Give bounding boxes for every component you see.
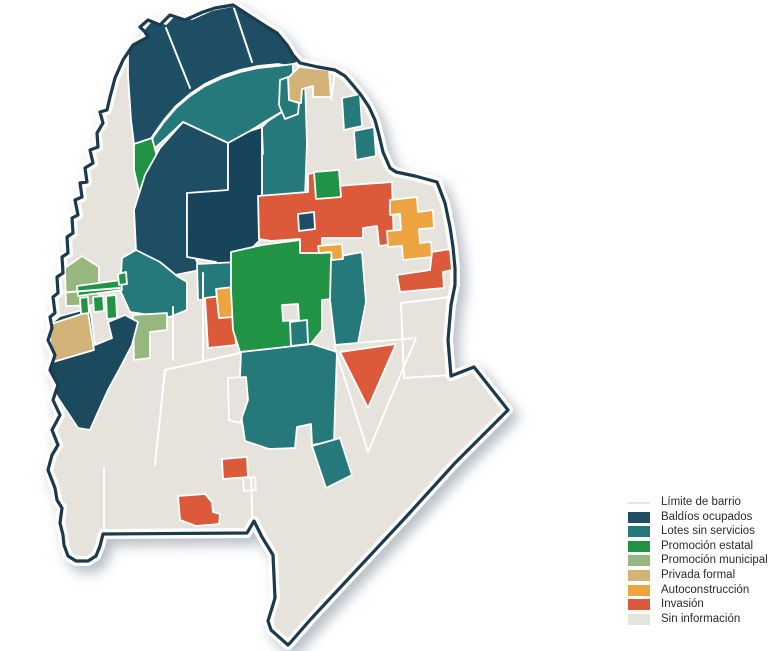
legend-item-estatal: Promoción estatal	[628, 541, 768, 552]
region-green-sq-red	[314, 170, 341, 199]
region-green-dot	[118, 272, 127, 285]
legend-item-invasion: Invasión	[628, 599, 768, 610]
map-page: Límite de barrioBaldíos ocupadosLotes si…	[0, 0, 778, 651]
legend-item-municipal: Promoción municipal	[628, 555, 768, 566]
legend-item-baldios: Baldíos ocupados	[628, 512, 768, 523]
legend-label: Promoción municipal	[661, 555, 768, 566]
legend-swatch-estatal	[628, 541, 650, 552]
legend-swatch-municipal	[628, 555, 650, 566]
region-notch-green	[282, 304, 299, 321]
legend-label: Promoción estatal	[661, 541, 753, 552]
legend-label: Sin información	[661, 614, 740, 625]
region-green-v2	[93, 296, 104, 312]
legend-swatch-sininfo	[628, 614, 650, 625]
region-south-teal-main	[239, 344, 337, 449]
legend-swatch-invasion	[628, 599, 650, 610]
legend-item-sininfo: Sin información	[628, 614, 768, 625]
region-green-v3	[106, 295, 117, 319]
legend-label: Baldíos ocupados	[661, 512, 752, 523]
region-gray-sq-south	[243, 477, 256, 491]
legend-label: Límite de barrio	[661, 497, 741, 508]
legend-swatch-auto	[628, 585, 650, 596]
region-teal-sq-green	[290, 320, 308, 346]
region-navy-sq-red	[298, 212, 315, 231]
legend-label: Invasión	[661, 599, 704, 610]
region-red-small-south	[222, 457, 248, 479]
legend-label: Autoconstrucción	[661, 585, 749, 596]
region-teal-ne-2	[342, 94, 362, 130]
region-teal-ne-3	[354, 127, 376, 160]
legend-item-privada: Privada formal	[628, 570, 768, 581]
legend-label: Privada formal	[661, 570, 735, 581]
map-legend: Límite de barrioBaldíos ocupadosLotes si…	[628, 497, 768, 625]
legend-item-lotes: Lotes sin servicios	[628, 526, 768, 537]
legend-swatch-lotes	[628, 526, 650, 537]
legend-item-auto: Autoconstrucción	[628, 585, 768, 596]
legend-label: Lotes sin servicios	[661, 526, 755, 537]
legend-swatch-baldios	[628, 512, 650, 523]
legend-item-limite: Límite de barrio	[628, 497, 768, 508]
region-green-v1	[80, 297, 89, 314]
legend-swatch-limite	[628, 502, 650, 504]
legend-swatch-privada	[628, 570, 650, 581]
